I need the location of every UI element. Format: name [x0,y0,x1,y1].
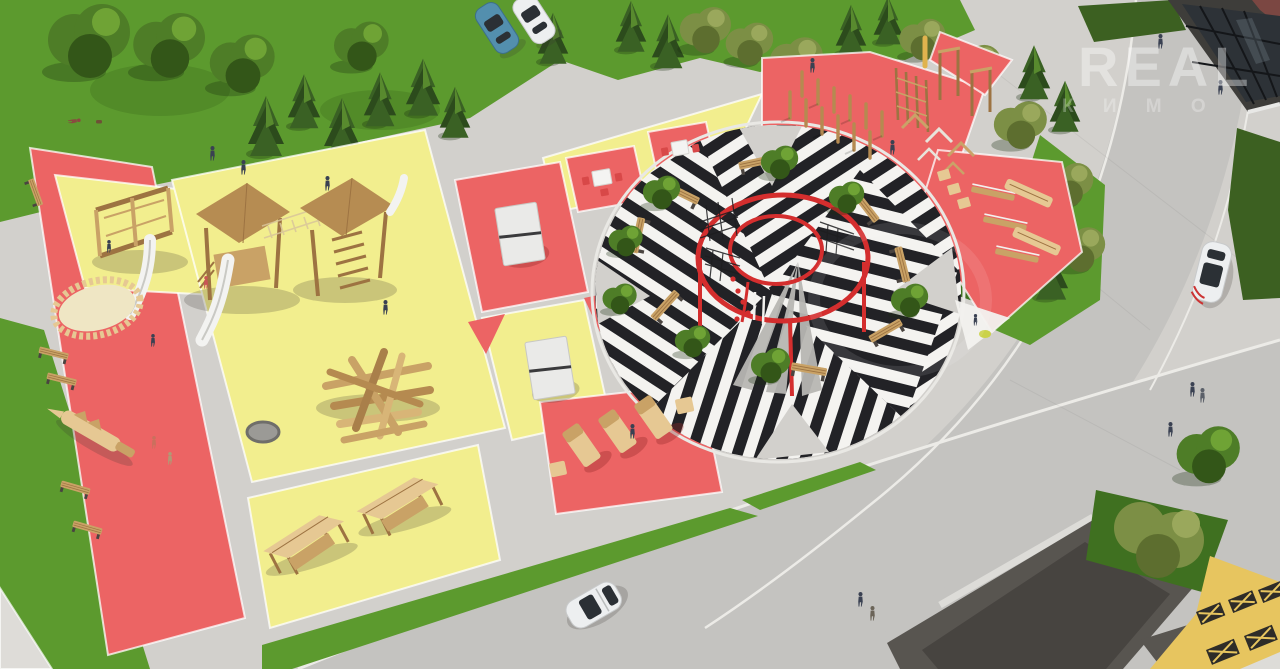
park-aerial-render: REAL К И М О [0,0,1280,669]
watermark-text-1: REAL [1078,35,1254,98]
pergola-post [790,320,792,396]
round-cover [247,422,279,442]
dog [96,120,102,124]
scene-canvas: REAL К И М О [0,0,1280,669]
watermark-text-2: К И М О [1062,96,1218,117]
